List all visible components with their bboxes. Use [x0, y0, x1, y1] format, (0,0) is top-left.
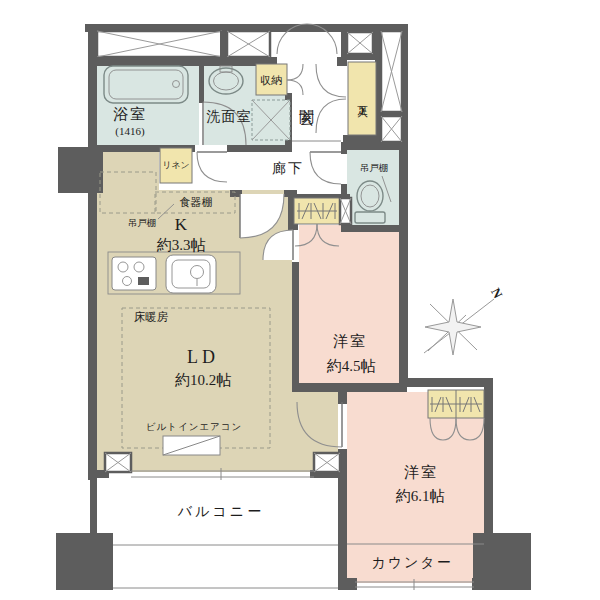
storage-door: [287, 80, 303, 95]
stove-icon: [112, 257, 156, 290]
shoe-cabinet-box: [348, 62, 376, 135]
label-storage: 収納: [260, 75, 282, 86]
label-kitchen-cabinet: 吊戸棚: [128, 219, 157, 229]
label-hallway: 廊下: [272, 162, 304, 176]
floorplan-drawing: [0, 0, 600, 600]
label-bedroom61-size: 約6.1帖: [396, 489, 445, 504]
label-bedroom61: 洋室: [404, 465, 438, 480]
kitchen-sink-icon: [166, 255, 216, 293]
label-cupboard: 食器棚: [180, 197, 213, 208]
label-living-dining: LD: [187, 348, 219, 366]
label-balcony: バルコニー: [178, 505, 264, 519]
pillar-bottom-right: [473, 533, 531, 590]
floorplan: 浴室 (1416) 洗面室 収納 玄関 下足入 リネン 廊下 吊戸棚 吊戸棚 食…: [0, 0, 600, 600]
toilet-door: [310, 152, 341, 184]
label-bedroom45-size: 約4.5帖: [327, 359, 376, 374]
pillar-left: [58, 147, 103, 193]
pillar-bottom-left: [56, 533, 113, 590]
label-bath: 浴室: [113, 107, 147, 122]
kitchen-floor-left: [97, 152, 159, 190]
label-floor-heating: 床暖房: [134, 312, 169, 324]
label-living-dining-size: 約10.2帖: [175, 373, 231, 388]
label-toilet-cabinet: 吊戸棚: [360, 164, 389, 174]
washing-machine-area: [252, 100, 290, 140]
washroom-door: [197, 152, 227, 182]
label-kitchen: K: [175, 216, 187, 233]
label-bedroom45: 洋室: [333, 334, 367, 349]
label-aircon: ビルトインエアコン: [146, 423, 243, 433]
storage-door: [287, 64, 303, 80]
aircon-unit: [163, 436, 220, 455]
label-washroom: 洗面室: [207, 110, 252, 124]
shoe-cabinet-door: [316, 64, 346, 97]
label-linen: リネン: [162, 161, 190, 170]
label-kitchen-size: 約3.3帖: [157, 238, 206, 253]
shoe-cabinet-door: [316, 99, 346, 133]
compass-icon: [424, 299, 494, 355]
label-bath-size: (1416): [115, 126, 144, 137]
label-counter: カウンター: [371, 556, 452, 570]
